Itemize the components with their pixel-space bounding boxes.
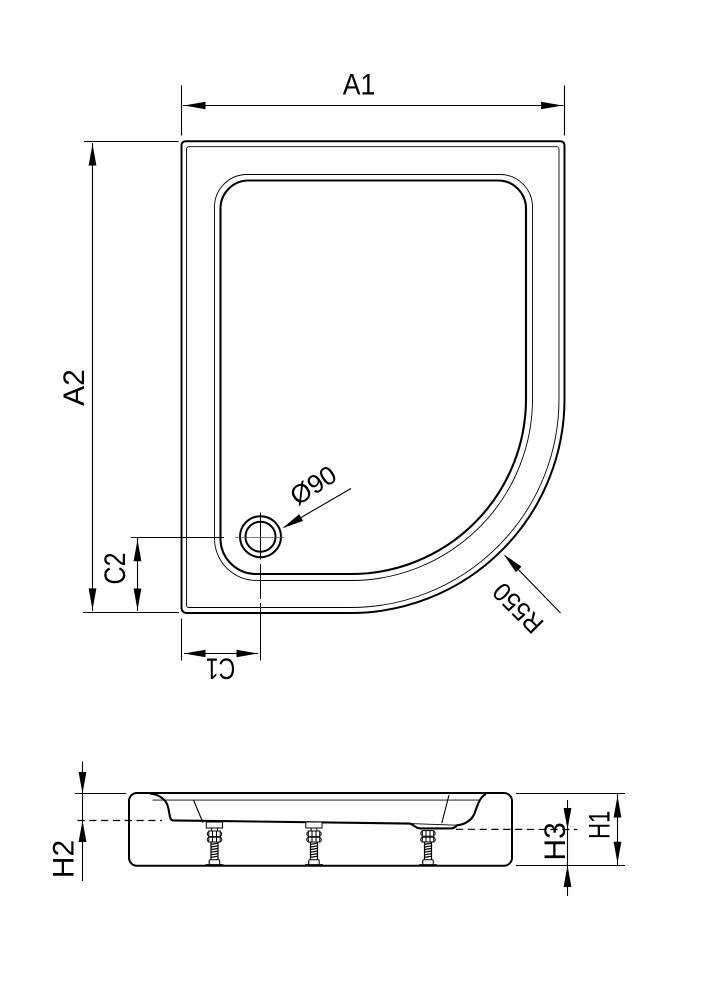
svg-text:H2: H2 bbox=[47, 840, 80, 878]
svg-text:C1: C1 bbox=[206, 651, 236, 684]
svg-text:A1: A1 bbox=[343, 69, 376, 102]
svg-text:C2: C2 bbox=[99, 553, 132, 585]
svg-text:H1: H1 bbox=[584, 811, 617, 840]
svg-text:A2: A2 bbox=[58, 369, 91, 406]
svg-text:H3: H3 bbox=[539, 822, 572, 860]
